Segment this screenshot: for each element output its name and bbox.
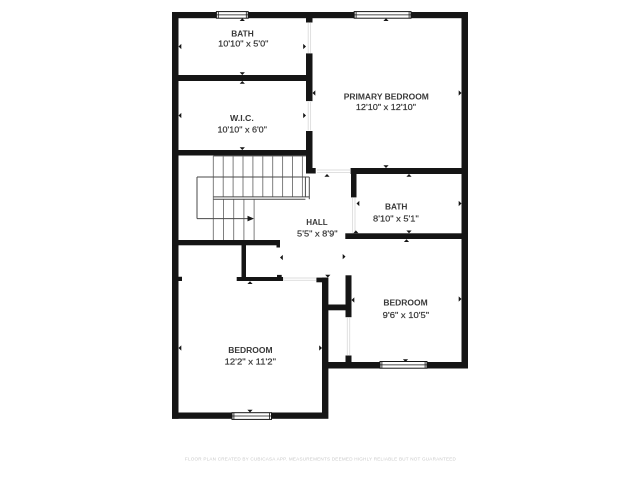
svg-text:12'10" x 12'10": 12'10" x 12'10" [356,102,416,112]
svg-text:10'10" x 5'0": 10'10" x 5'0" [218,38,268,48]
svg-text:BEDROOM: BEDROOM [383,298,427,308]
svg-text:10'10" x 6'0": 10'10" x 6'0" [218,125,267,135]
svg-text:BATH: BATH [231,28,254,38]
svg-text:5'5" x 8'9": 5'5" x 8'9" [297,229,338,239]
svg-text:HALL: HALL [306,217,327,227]
svg-text:12'2" x 11'2": 12'2" x 11'2" [225,357,276,367]
svg-text:FLOOR PLAN CREATED BY CUBICASA: FLOOR PLAN CREATED BY CUBICASA APP. MEAS… [185,457,457,462]
svg-text:8'10" x 5'1": 8'10" x 5'1" [373,213,419,223]
svg-text:PRIMARY BEDROOM: PRIMARY BEDROOM [344,92,429,102]
svg-text:BEDROOM: BEDROOM [228,345,272,355]
svg-text:9'6" x 10'5": 9'6" x 10'5" [383,310,429,320]
svg-text:W.I.C.: W.I.C. [230,113,254,123]
svg-text:BATH: BATH [385,202,408,212]
